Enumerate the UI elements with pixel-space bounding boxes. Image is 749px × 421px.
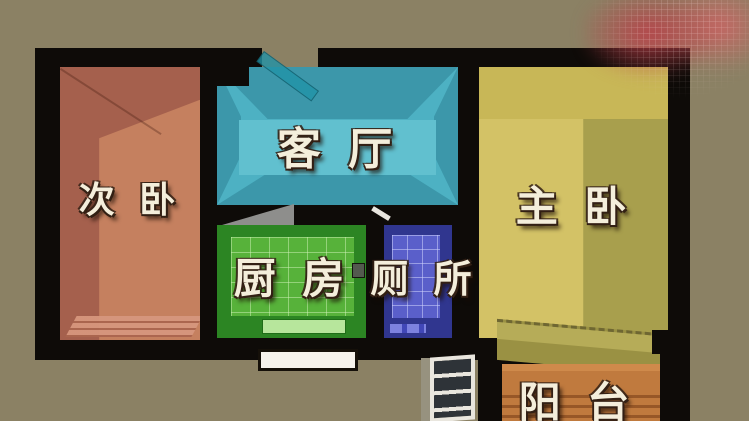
corner-perspective-line (60, 68, 162, 135)
label-toilet: 厕 所 (369, 260, 479, 298)
door-frame-shading (421, 358, 430, 421)
watermark-grid-texture (583, 0, 749, 100)
label-kitchen: 厨 房 (212, 258, 372, 300)
kitchen-window (258, 349, 358, 371)
label-living-room: 客 厅 (217, 128, 458, 172)
living-wall-bottom (217, 173, 458, 205)
label-master-bedroom: 主 卧 (479, 186, 669, 228)
floorboards (66, 316, 200, 337)
label-secondary-bedroom: 次 卧 (55, 182, 205, 218)
label-balcony: 阳 台 (492, 382, 662, 421)
wall-pier (217, 67, 249, 86)
floor-plan-image: 次 卧 客 厅 厨 房 厕 所 主 卧 阳 台 (0, 0, 749, 421)
balcony-glass-door (430, 354, 475, 421)
kitchen-counter (262, 319, 346, 334)
living-wall-top (217, 67, 458, 119)
balcony-edge (502, 364, 660, 371)
toilet-fixtures (390, 324, 426, 333)
wall-stub (652, 330, 672, 354)
